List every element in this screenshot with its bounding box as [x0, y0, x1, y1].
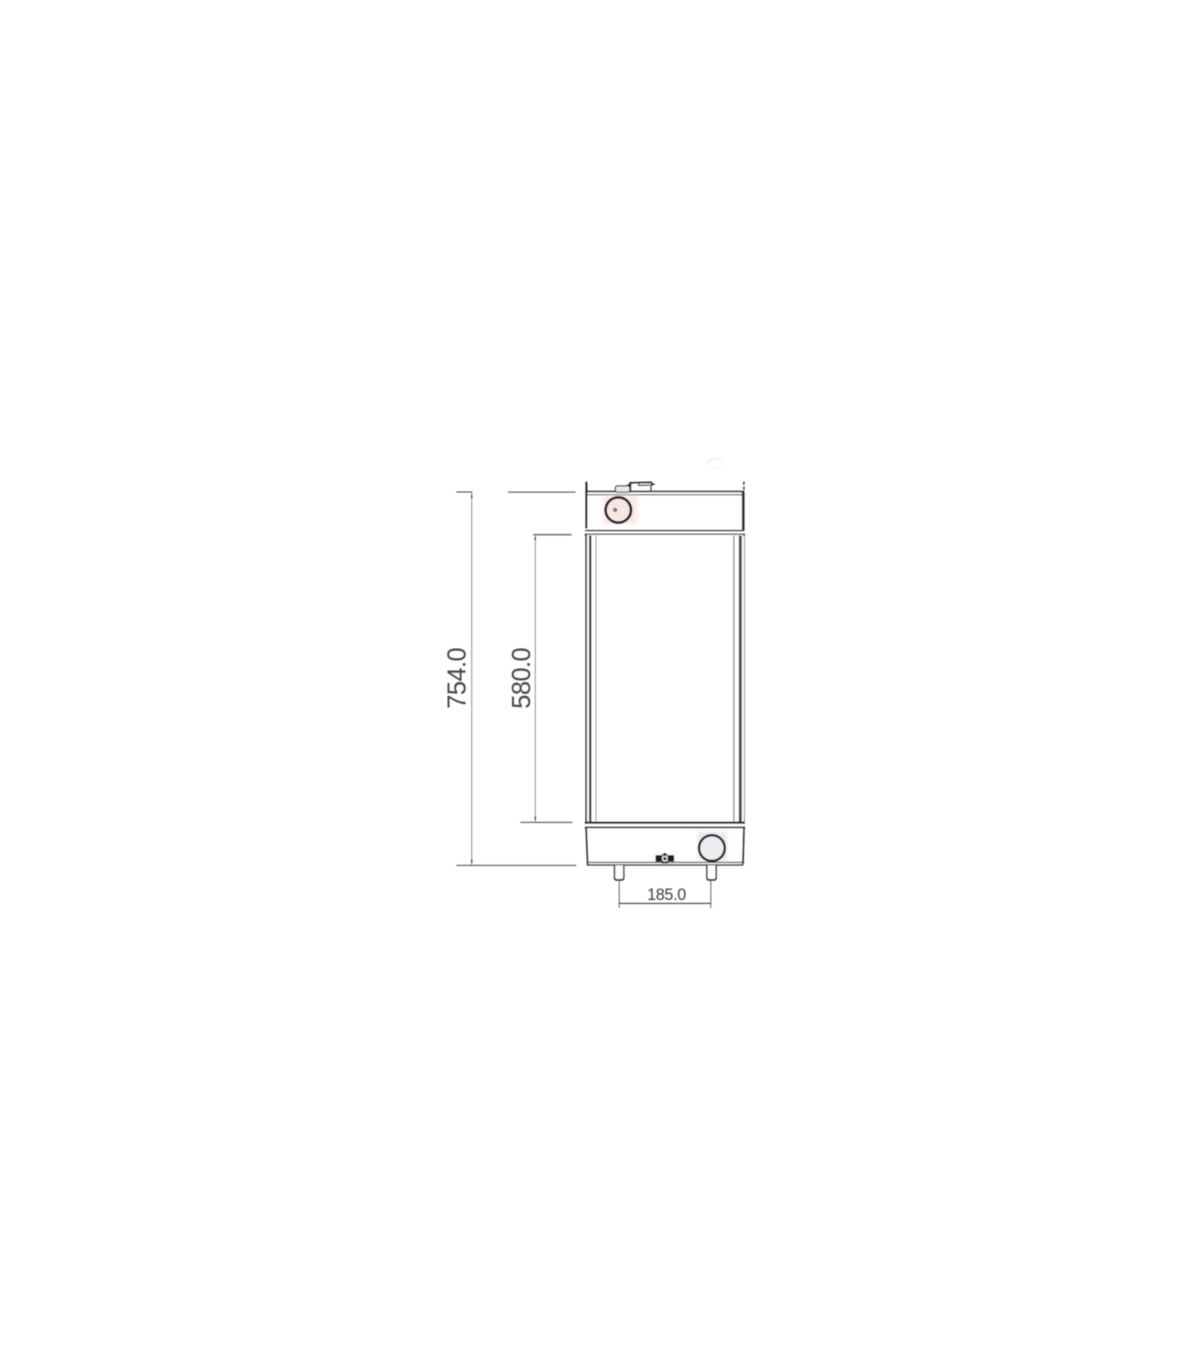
svg-text:185.0: 185.0 — [647, 886, 686, 904]
svg-text:754.0: 754.0 — [443, 647, 471, 708]
svg-text:580.0: 580.0 — [508, 647, 536, 708]
